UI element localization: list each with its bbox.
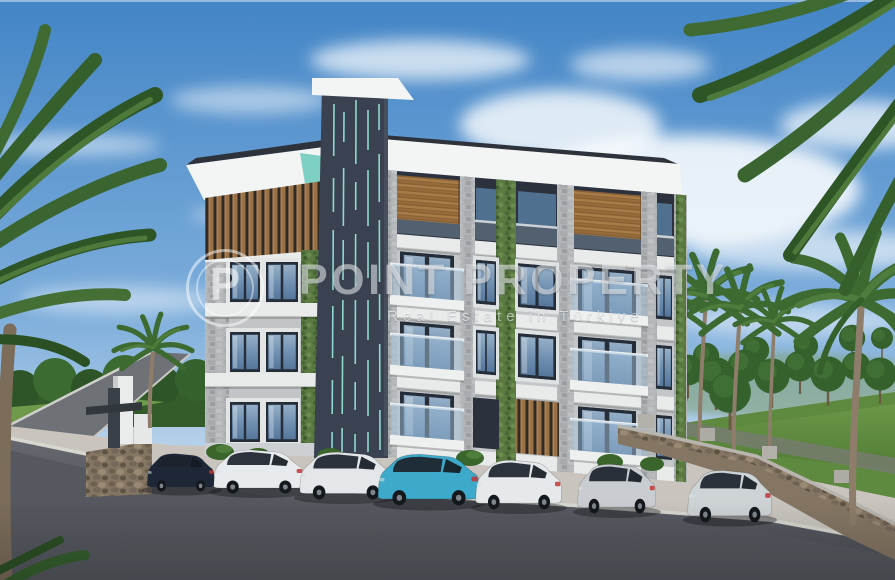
window [266, 262, 298, 302]
foreground-vignette [0, 500, 895, 580]
window [518, 263, 556, 310]
gate-dark-panel [108, 388, 120, 448]
render-image: P POINT PROPERTY Real Estate in Türkiye [0, 0, 895, 580]
wood-canopy [392, 175, 464, 225]
balcony [570, 278, 648, 329]
window [266, 332, 298, 372]
window [230, 332, 260, 372]
balcony [390, 402, 464, 452]
balcony [390, 262, 464, 312]
scene [0, 0, 895, 580]
window [230, 262, 260, 302]
image-top-edge [0, 0, 895, 2]
window [266, 402, 298, 442]
balcony [390, 332, 464, 382]
wood-cladding [515, 399, 559, 457]
tower-side-light [384, 88, 388, 456]
window [518, 333, 556, 380]
corner-pillar [205, 262, 229, 455]
building-left-wing [186, 140, 325, 456]
window [656, 345, 672, 390]
balcony [570, 348, 648, 399]
window [476, 260, 496, 306]
window [656, 275, 672, 320]
tower-body [314, 86, 388, 458]
window [230, 402, 260, 442]
window [476, 330, 496, 376]
wood-canopy [570, 190, 646, 240]
